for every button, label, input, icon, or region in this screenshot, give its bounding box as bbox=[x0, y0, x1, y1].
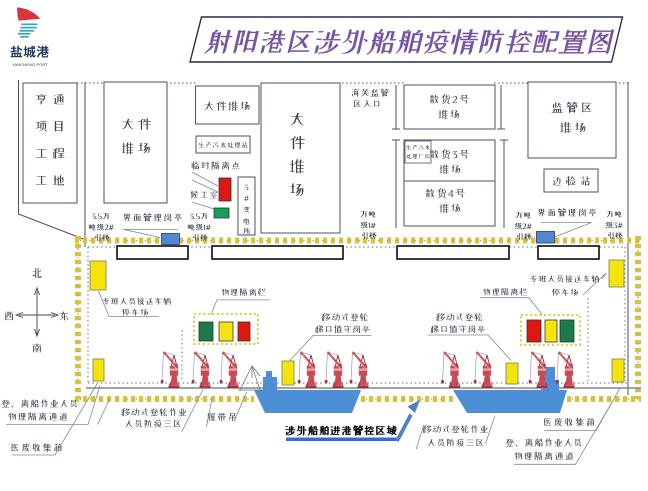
svg-text:YANCHENG PORT: YANCHENG PORT bbox=[12, 62, 48, 67]
